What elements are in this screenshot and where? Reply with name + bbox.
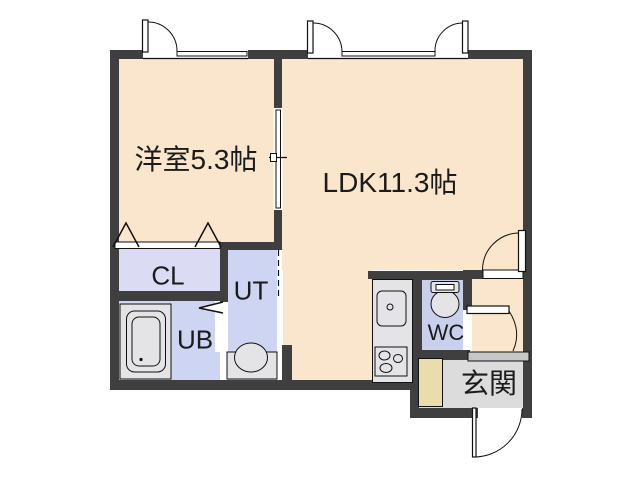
wall-ut-top bbox=[220, 242, 282, 250]
ldk-double-door bbox=[308, 21, 469, 59]
wall-genkan-corner bbox=[522, 408, 532, 418]
ut-ldk-doorway bbox=[277, 297, 283, 345]
wall-genkan-bottom bbox=[410, 408, 478, 418]
wall-right bbox=[523, 50, 532, 418]
youshitsu-entry-door bbox=[143, 20, 249, 59]
label-ldk: LDK11.3帖 bbox=[323, 161, 458, 201]
wall-kitchen-stub bbox=[368, 271, 413, 279]
wall-wc-left bbox=[413, 271, 422, 360]
label-cl: CL bbox=[151, 261, 184, 292]
ub-ut-door-gap bbox=[215, 301, 228, 352]
label-youshitsu: 洋室5.3帖 bbox=[135, 138, 258, 178]
wall-cl-bottom bbox=[110, 291, 222, 301]
label-genkan: 玄関 bbox=[461, 362, 517, 402]
label-ub: UB bbox=[177, 325, 213, 356]
entrance-door bbox=[473, 408, 523, 457]
wall-top-mid bbox=[248, 50, 308, 59]
label-ut: UT bbox=[234, 276, 269, 307]
label-wc: WC bbox=[428, 320, 465, 346]
window-symbol bbox=[342, 52, 435, 57]
shoe-cabinet bbox=[418, 358, 443, 407]
hallway-floor bbox=[472, 279, 523, 352]
wall-left bbox=[110, 50, 119, 390]
floor-plan: 洋室5.3帖 LDK11.3帖 CL UT UB WC 玄関 bbox=[0, 0, 640, 480]
room-ldk-floor-lower bbox=[283, 243, 372, 380]
wall-ut-ldk-lower bbox=[282, 345, 292, 389]
kitchen-counter bbox=[372, 279, 413, 383]
wall-wc-top bbox=[413, 271, 463, 280]
wall-divider-upper bbox=[274, 59, 282, 108]
room-ut-floor bbox=[228, 250, 277, 380]
window-symbol bbox=[177, 52, 247, 57]
wall-ldk-hall-stub bbox=[463, 270, 483, 279]
